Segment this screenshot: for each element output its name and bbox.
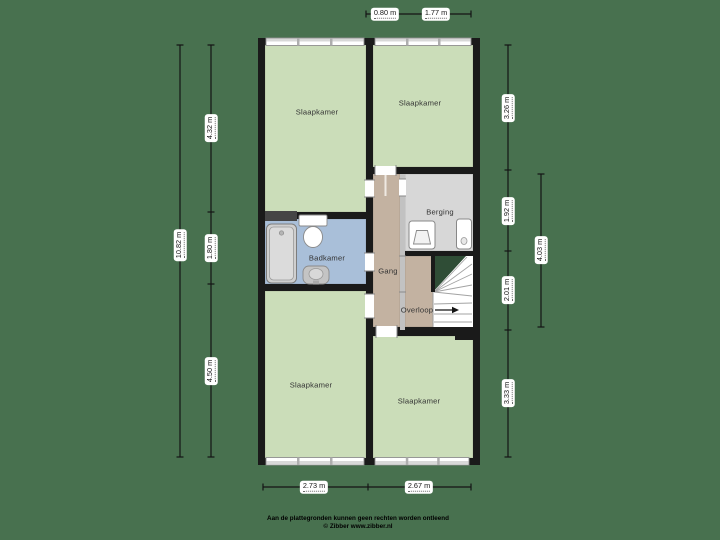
room-label-slaapkamer-br: Slaapkamer <box>398 397 441 406</box>
dim-right-inner-1: 3.26 m <box>502 94 515 122</box>
floor-plan-drawing <box>0 0 720 540</box>
door-badkamer <box>364 253 375 271</box>
dim-left-inner-1: 4.32 m <box>205 114 218 142</box>
room-label-slaapkamer-tl: Slaapkamer <box>296 108 339 117</box>
wall-exterior-right <box>473 38 480 465</box>
wall-center-vertical <box>366 45 373 458</box>
room-label-gang: Gang <box>378 267 397 276</box>
room-slaapkamer-bl <box>265 291 366 458</box>
dim-left-inner-3: 4.50 m <box>205 357 218 385</box>
dim-right-inner-2: 1.92 m <box>502 197 515 225</box>
dim-bottom-1: 2.73 m <box>300 481 328 494</box>
dim-top-2: 1.77 m <box>422 8 450 21</box>
room-label-slaapkamer-tr: Slaapkamer <box>399 99 442 108</box>
room-label-overloop: Overloop <box>401 306 433 315</box>
room-label-slaapkamer-bl: Slaapkamer <box>290 381 333 390</box>
door-slaapkamer-bl <box>364 294 375 318</box>
bathroom-counter <box>265 211 297 221</box>
dim-left-inner-2: 1.80 m <box>205 234 218 262</box>
wall-berging-bottom <box>405 251 473 256</box>
window-top-left <box>266 38 364 46</box>
room-label-badkamer: Badkamer <box>309 254 345 263</box>
window-bottom-right <box>375 458 469 466</box>
room-overloop <box>405 256 433 327</box>
wall-bathroom-bedroom <box>265 284 366 291</box>
door-slaapkamer-tl <box>364 180 375 197</box>
door-slaapkamer-br <box>376 325 397 338</box>
boiler-icon <box>457 219 472 249</box>
window-top-right <box>375 38 471 46</box>
washing-machine-icon <box>409 221 435 249</box>
room-label-berging: Berging <box>426 208 454 217</box>
wall-corner-step <box>455 327 473 340</box>
dim-right-inner-4: 3.33 m <box>502 379 515 407</box>
door-opening-berging <box>399 179 406 196</box>
room-slaapkamer-tl <box>265 45 366 212</box>
dim-left-outer: 10.82 m <box>174 229 187 261</box>
dim-right-outer: 4.03 m <box>535 236 548 264</box>
window-bottom-left <box>266 458 364 466</box>
stairs <box>433 256 473 327</box>
dim-top-1: 0.80 m <box>371 8 399 21</box>
room-gang <box>373 174 400 327</box>
dim-bottom-2: 2.67 m <box>405 481 433 494</box>
wall-overloop-stairs <box>431 256 435 292</box>
wall-exterior-left <box>258 38 265 465</box>
bathtub-icon <box>267 224 297 283</box>
footer-disclaimer: Aan de plattegronden kunnen geen rechten… <box>267 515 449 522</box>
dim-right-inner-3: 2.01 m <box>502 276 515 304</box>
floor-plan-canvas: Slaapkamer Slaapkamer Badkamer Gang Berg… <box>0 0 720 540</box>
footer-credit: © Zibber www.zibber.nl <box>323 523 392 530</box>
sink-icon <box>303 266 329 285</box>
